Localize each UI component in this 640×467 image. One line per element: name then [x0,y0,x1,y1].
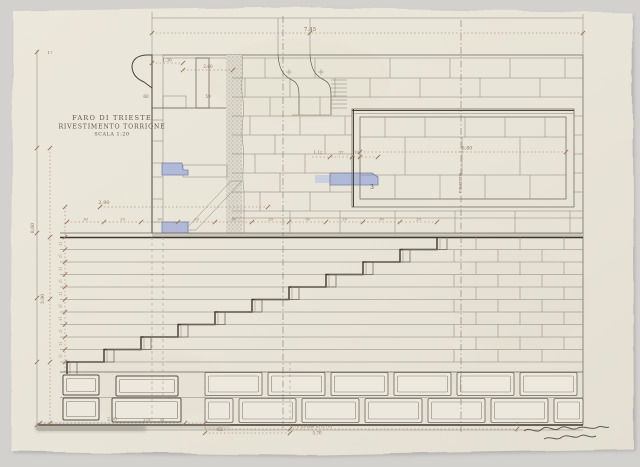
dimension-label: 30 [157,218,162,222]
title-line-1: FARO DI TRIESTE [72,114,152,122]
dimension-label: 59 [205,94,211,99]
dimension-label: 21 [59,267,63,271]
dimension-label: 21 [59,317,63,321]
dimension-label: 6.80 [462,146,473,152]
dimension-label: 10 [354,150,360,155]
title-line-3: SCALA 1:20 [94,132,129,138]
dimension-label: 21 [59,242,63,246]
dimension-label: 3.90 [40,294,46,304]
dimension-label: 17 [47,50,53,55]
dimension-label: 21 [59,342,63,346]
dimension-label: 2.50 [107,418,117,423]
rubble-column [226,55,242,235]
dimension-label: 21 [59,304,63,308]
dimension-label: 29 [416,218,421,222]
dimension-label: 21 [59,292,63,296]
dimension-label: 8.70 (totale m 8.70) [290,424,332,429]
blue-stone-2 [162,222,188,233]
stone-number-label: 3 [370,184,374,191]
title-line-2: RIVESTIMENTO TORRIONE [58,124,165,131]
dimension-label: MEZZERIA [458,173,462,194]
dimension-label: 30 [83,218,88,222]
plinth-block [63,375,99,395]
dimension-label: 21 [59,354,63,358]
dimension-label: 35 [160,418,165,422]
dimension-label: 8.60 [30,223,36,233]
dimension-label: 5.70 [312,431,322,436]
technical-drawing: FARO DI TRIESTE RIVESTIMENTO TORRIONE SC… [0,0,640,467]
scanned-drawing-viewport: { "title_block": { "line1": "FARO DI TRI… [0,0,640,467]
dimension-label: 29 [268,218,273,222]
dimension-label: 21 [59,329,63,333]
dimension-label: 7.45 [304,27,317,33]
plinth-block [116,376,178,396]
dimension-label: 1.12 [314,150,323,155]
dimension-label: 2.90 [98,200,109,206]
dimension-label: 29 [194,218,199,222]
dimension-label: 30 [379,218,384,222]
dimension-label: 1.30 [162,58,172,63]
dimension-label: 21 [59,279,63,283]
dimension-label: 37 [338,150,344,155]
dimension-label: 30 [305,218,310,222]
dimension-label: 21 [59,254,63,258]
dimension-label: 30 [231,218,236,222]
dimension-label: 60 [143,94,149,99]
dimension-label: 29 [342,218,347,222]
dimension-label: 2.60 [203,64,213,69]
dimension-label: 62 [217,427,223,433]
dimension-label: 29 [120,218,125,222]
ground-shadow [36,424,146,431]
blue-stone-3-tail [315,175,331,183]
dimension-label: 1.01 [143,418,151,422]
